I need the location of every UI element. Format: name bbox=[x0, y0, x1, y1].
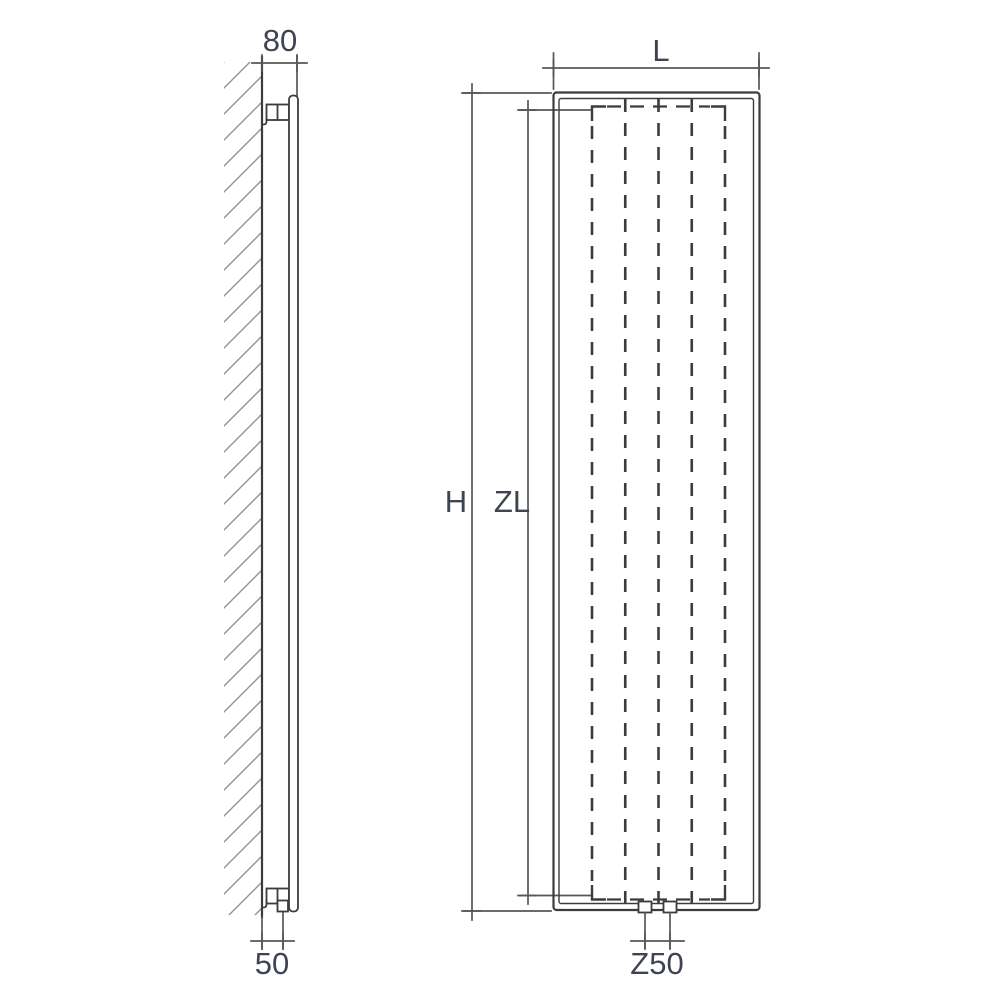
dim-80-label: 80 bbox=[263, 23, 297, 58]
radiator-front bbox=[554, 93, 760, 913]
element-corner-bottom-right bbox=[711, 885, 725, 900]
connection-stub-left bbox=[639, 902, 652, 913]
dim-ZL-label: ZL bbox=[494, 484, 530, 519]
dim-50: 50 bbox=[251, 913, 294, 981]
bracket-top bbox=[262, 105, 289, 125]
heating-element-dashed bbox=[592, 99, 725, 903]
radiator-dimension-diagram: 80 50 bbox=[0, 0, 1000, 1000]
dim-Z50: Z50 bbox=[630, 913, 684, 981]
dim-L: L bbox=[543, 33, 769, 89]
front-view: L H ZL bbox=[445, 33, 769, 981]
element-corner-top-left bbox=[592, 107, 606, 122]
bracket-bottom-stub bbox=[278, 901, 289, 912]
radiator-panel-side bbox=[289, 96, 298, 912]
dim-L-label: L bbox=[652, 33, 669, 68]
connection-stub-right bbox=[664, 902, 677, 913]
radiator-front-outline bbox=[554, 93, 760, 911]
element-corner-bottom-left bbox=[592, 885, 606, 900]
dim-50-label: 50 bbox=[255, 946, 289, 981]
wall bbox=[224, 57, 262, 917]
diagram-canvas: 80 50 bbox=[0, 0, 1000, 1000]
dim-ZL: ZL bbox=[494, 101, 591, 904]
element-corner-top-right bbox=[711, 107, 725, 122]
wall-hatch bbox=[224, 62, 262, 915]
dim-Z50-label: Z50 bbox=[630, 946, 683, 981]
dim-H-label: H bbox=[445, 484, 467, 519]
bracket-bottom bbox=[262, 889, 289, 912]
side-view: 80 50 bbox=[224, 23, 307, 981]
